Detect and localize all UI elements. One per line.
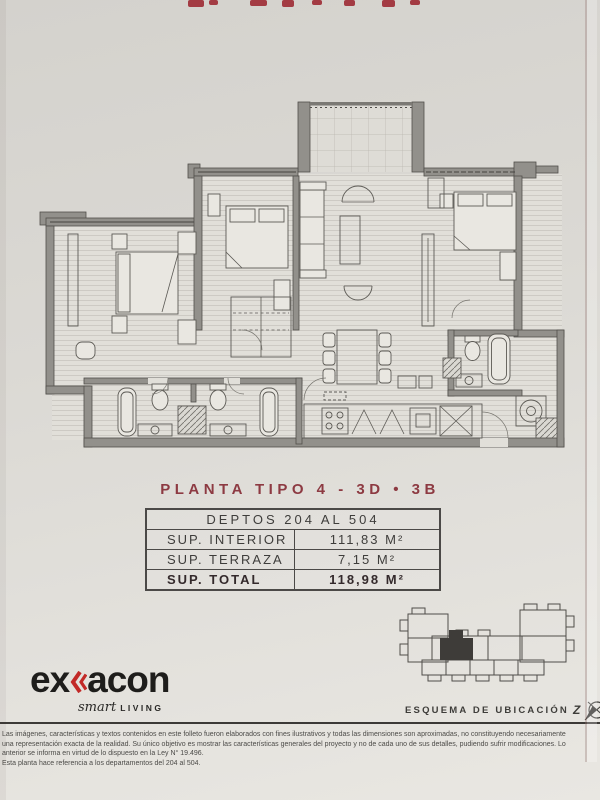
table-row: SUP. TERRAZA 7,15 M² bbox=[147, 549, 439, 569]
bed bbox=[116, 252, 178, 314]
page-edge-highlight bbox=[587, 0, 597, 762]
compass-letter: Z bbox=[573, 703, 580, 717]
toilet bbox=[152, 390, 168, 410]
legal-line: Esta planta hace referencia a los depart… bbox=[2, 759, 600, 769]
dresser bbox=[274, 280, 290, 310]
bed bbox=[226, 206, 288, 268]
page-title: PLANTA TIPO 4 - 3D • 3B bbox=[20, 481, 580, 498]
row-value: 111,83 M² bbox=[295, 530, 439, 549]
toilet-tank bbox=[210, 384, 226, 390]
sofa bbox=[300, 190, 324, 270]
row-label: SUP. INTERIOR bbox=[147, 530, 295, 549]
brochure-page: .w{fill:#92908b;stroke:#504e4a;stroke-wi… bbox=[0, 0, 600, 800]
row-label: SUP. TERRAZA bbox=[147, 550, 295, 569]
area-table: DEPTOS 204 AL 504 SUP. INTERIOR 111,83 M… bbox=[145, 508, 441, 591]
brand-logo: exacon smartLIVING bbox=[30, 660, 210, 716]
logo-tagline: smartLIVING bbox=[78, 698, 210, 716]
divider-rule bbox=[0, 722, 600, 724]
table-row-total: SUP. TOTAL 118,98 M² bbox=[147, 569, 439, 589]
location-scheme-map bbox=[398, 600, 576, 692]
dresser bbox=[500, 252, 516, 280]
nightstand bbox=[112, 234, 127, 249]
dresser bbox=[178, 320, 196, 344]
floor-plan: .w{fill:#92908b;stroke:#504e4a;stroke-wi… bbox=[28, 86, 572, 458]
sofa-arm bbox=[300, 270, 326, 278]
sofa-arm bbox=[300, 182, 326, 190]
toilet bbox=[465, 342, 480, 361]
shelf bbox=[208, 194, 220, 216]
nightstand bbox=[112, 316, 127, 333]
legal-line: Las imágenes, características y textos c… bbox=[2, 730, 600, 740]
table-header: DEPTOS 204 AL 504 bbox=[206, 510, 379, 529]
logo-text: acon bbox=[87, 661, 169, 699]
cropped-red-heading bbox=[186, 0, 426, 8]
legal-line: una representación exacta de la realidad… bbox=[2, 740, 600, 750]
page-edge-shadow bbox=[0, 0, 6, 800]
row-label: SUP. TOTAL bbox=[147, 570, 295, 589]
row-value: 7,15 M² bbox=[295, 550, 439, 569]
table-header-row: DEPTOS 204 AL 504 bbox=[147, 510, 439, 529]
table-row: SUP. INTERIOR 111,83 M² bbox=[147, 529, 439, 549]
armchair bbox=[76, 342, 95, 359]
terrace-floor bbox=[310, 106, 412, 172]
dresser bbox=[178, 232, 196, 254]
legal-disclaimer: Las imágenes, características y textos c… bbox=[2, 730, 600, 768]
legal-line: anterior se informa en virtud de lo disp… bbox=[2, 749, 600, 759]
toilet bbox=[210, 390, 226, 410]
bed bbox=[454, 192, 516, 250]
logo-chevron-icon bbox=[70, 662, 87, 700]
location-scheme-label: ESQUEMA DE UBICACIÓN Z bbox=[405, 699, 600, 721]
row-value: 118,98 M² bbox=[295, 570, 439, 589]
logo-text: ex bbox=[30, 661, 69, 699]
logo-wordmark: exacon bbox=[30, 660, 210, 700]
nightstand bbox=[440, 194, 453, 208]
